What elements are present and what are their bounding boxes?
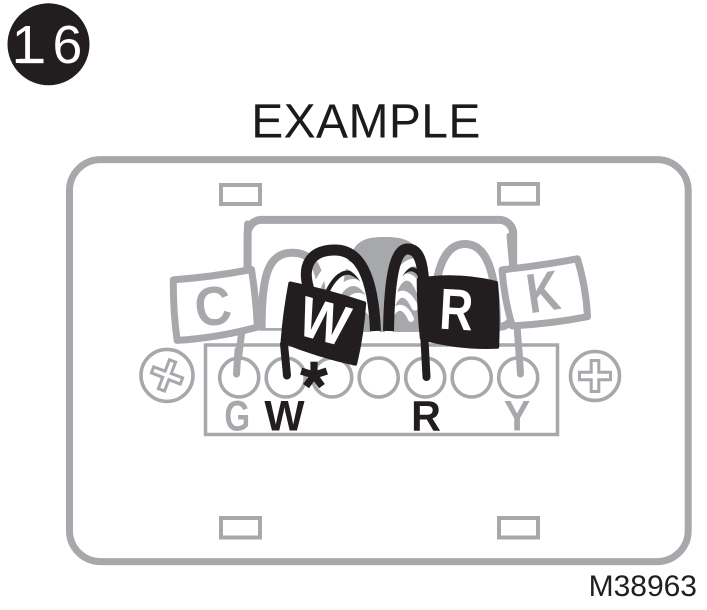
svg-text:W: W — [264, 392, 305, 440]
svg-text:G: G — [224, 392, 250, 440]
svg-text:EXAMPLE: EXAMPLE — [251, 96, 481, 149]
svg-text:Y: Y — [504, 392, 530, 440]
svg-text:R: R — [438, 277, 475, 344]
svg-text:R: R — [411, 392, 441, 440]
svg-text:M38963: M38963 — [589, 570, 697, 603]
svg-text:16: 16 — [12, 16, 94, 75]
svg-text:C: C — [191, 274, 235, 339]
